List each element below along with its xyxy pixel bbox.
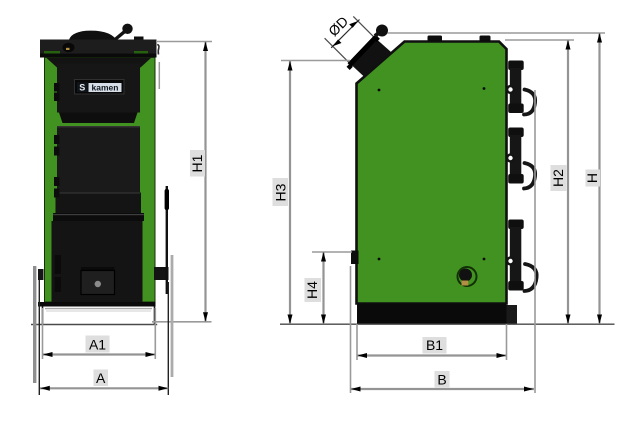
svg-text:A1: A1: [89, 336, 106, 352]
svg-text:H2: H2: [550, 169, 566, 187]
svg-text:H: H: [584, 173, 600, 183]
svg-text:H3: H3: [273, 183, 289, 201]
svg-text:S: S: [79, 83, 85, 93]
svg-text:A: A: [96, 370, 106, 386]
svg-text:B: B: [437, 371, 446, 387]
svg-text:B1: B1: [426, 337, 443, 353]
svg-text:kamen: kamen: [92, 82, 119, 92]
svg-text:H4: H4: [304, 281, 320, 299]
svg-text:H1: H1: [189, 154, 205, 172]
